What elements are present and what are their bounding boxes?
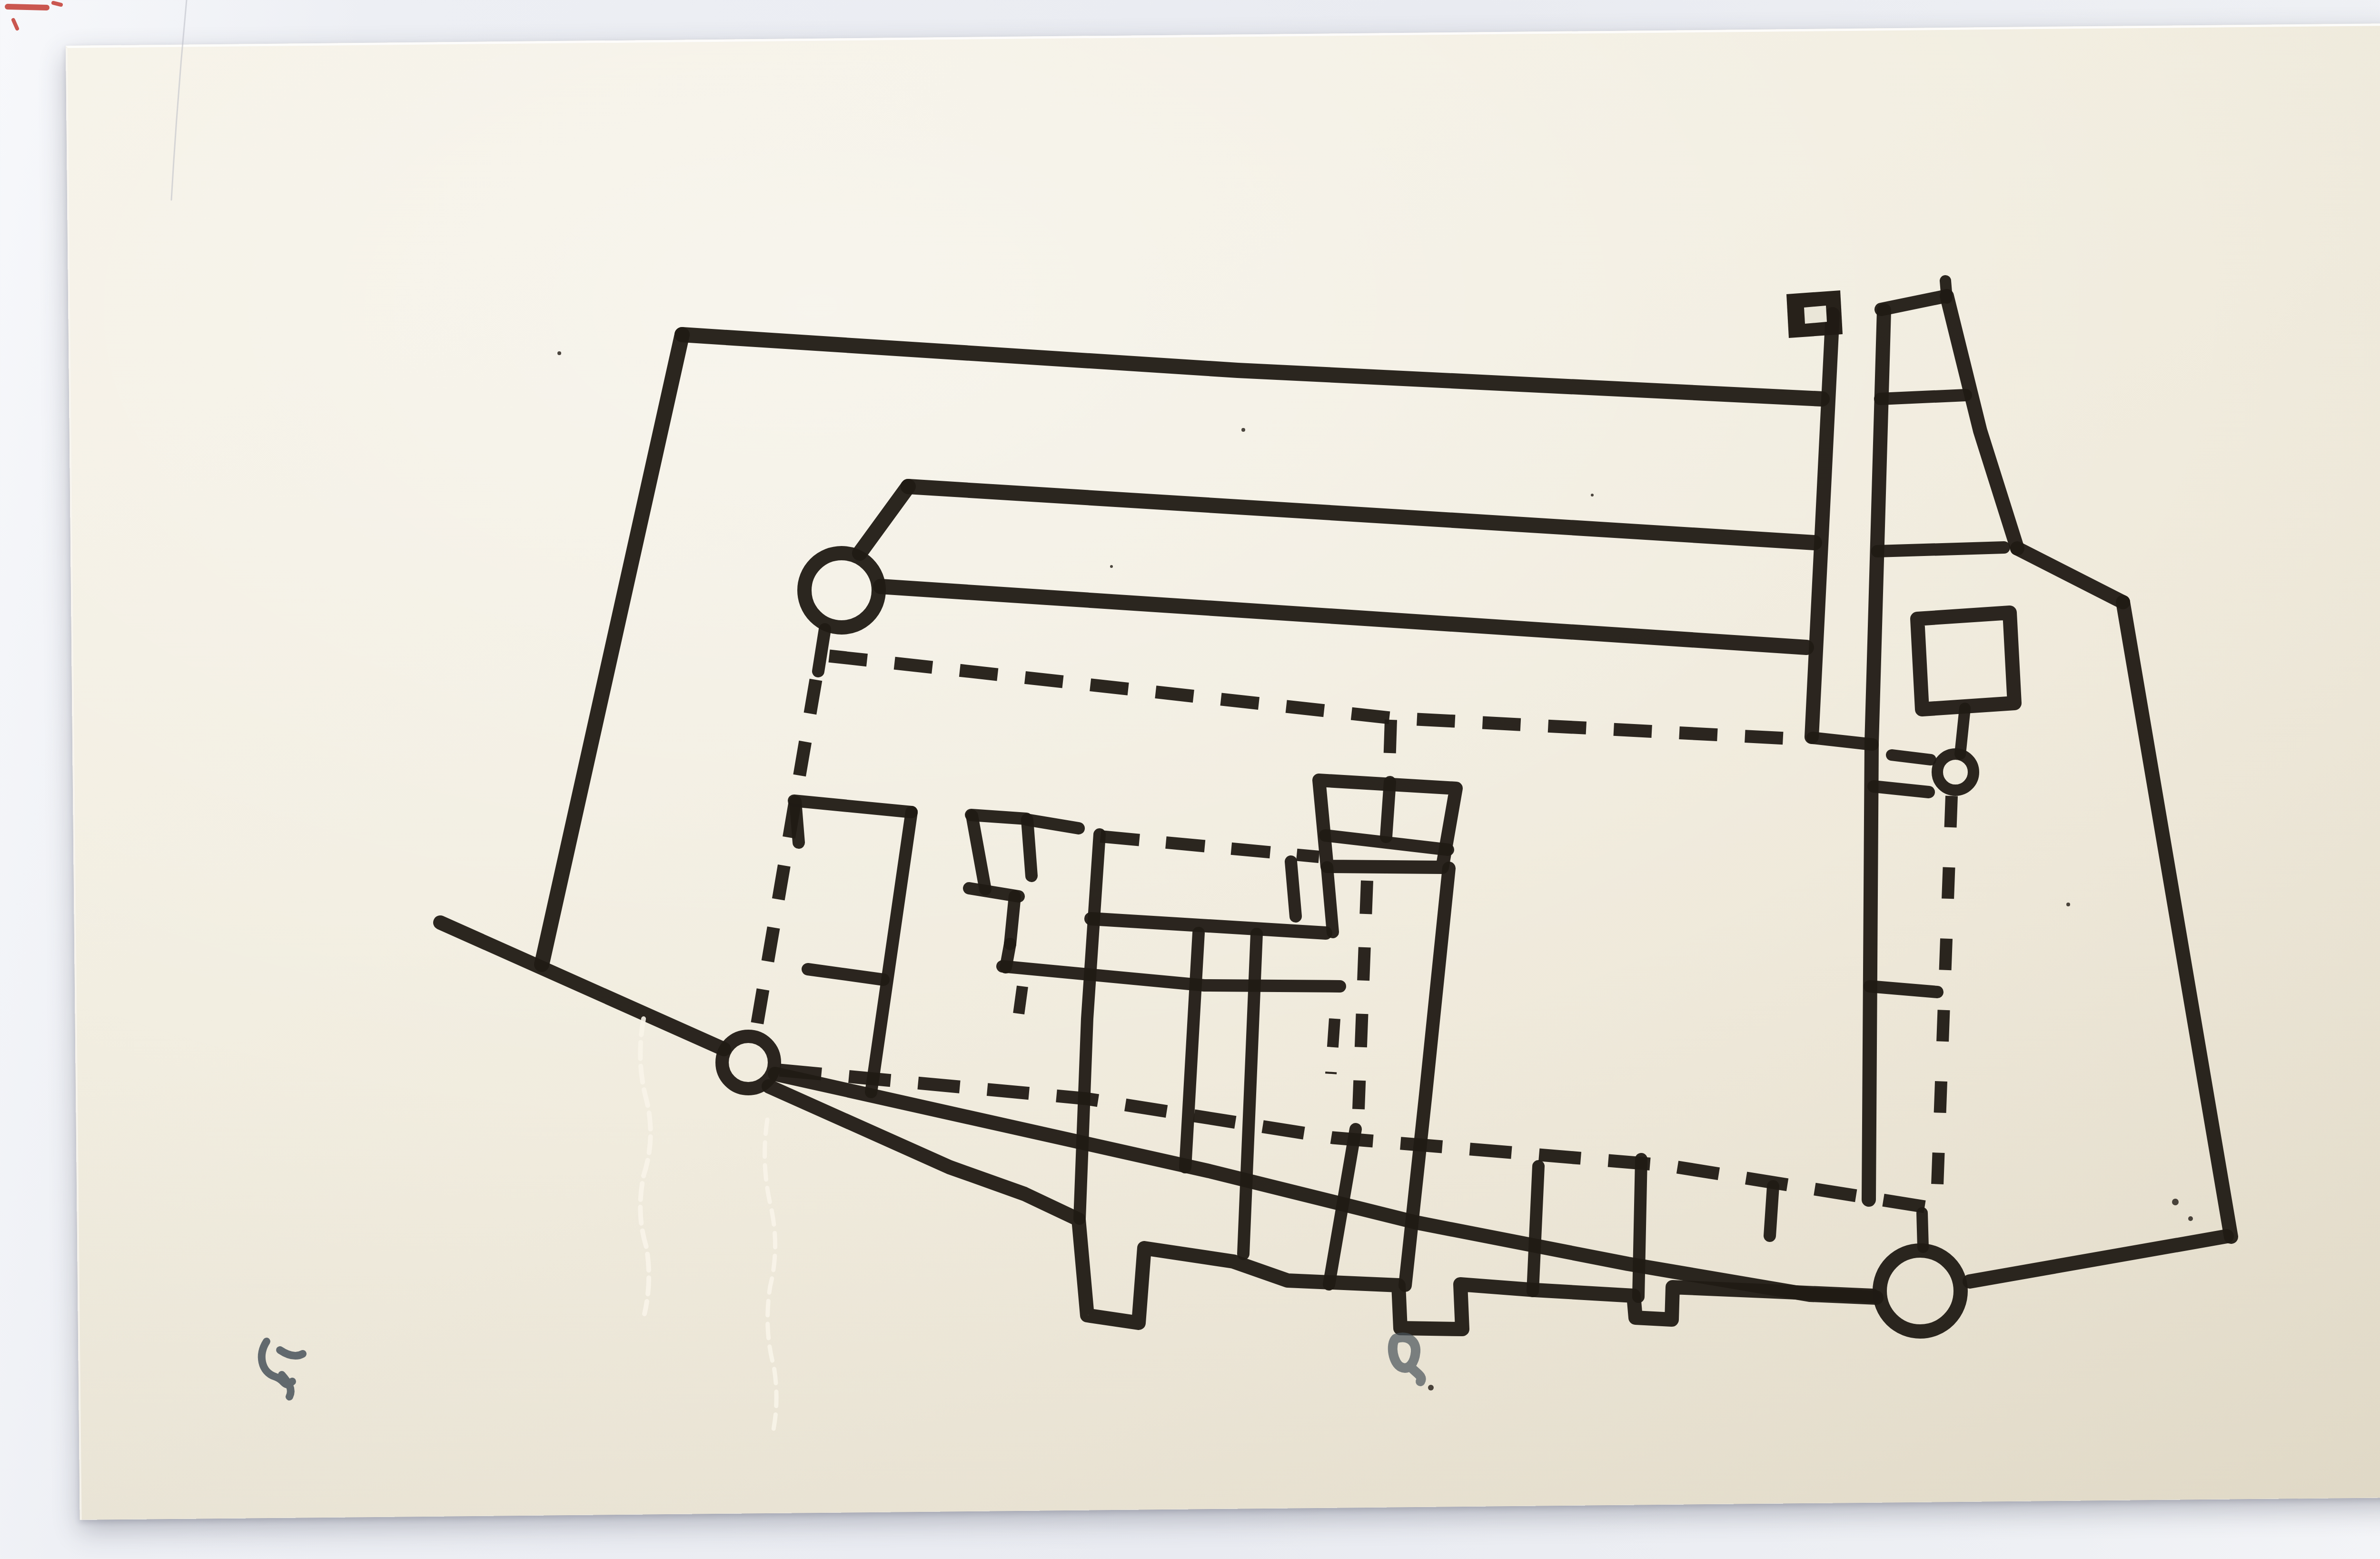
hull-tick-b bbox=[1770, 1186, 1773, 1236]
tower-top-bar bbox=[1881, 296, 1946, 309]
dust-speck bbox=[1241, 428, 1245, 432]
scratch-lower bbox=[765, 1120, 777, 1436]
dashed-inner-row bbox=[1101, 836, 1319, 857]
band-upper-diagonal bbox=[860, 487, 908, 553]
outer-boundary-top bbox=[682, 335, 1822, 399]
dust-speck bbox=[557, 351, 561, 355]
room2-left bbox=[972, 816, 985, 889]
dashed-west-boundary bbox=[756, 680, 816, 1031]
room2-top-b bbox=[1027, 820, 1079, 828]
node-circle-annex bbox=[1937, 754, 1973, 790]
dust-speck bbox=[2172, 1199, 2179, 1205]
room2-lower-bar bbox=[1002, 966, 1340, 986]
hall-bar bbox=[1091, 919, 1326, 933]
room2-mid-drop bbox=[1010, 896, 1015, 944]
dashed-annex-vertical bbox=[1936, 796, 1952, 1211]
flag-pole bbox=[1812, 314, 1833, 737]
annex-square bbox=[1917, 613, 2014, 709]
dust-speck bbox=[2188, 1216, 2193, 1221]
court-left-drop bbox=[1327, 867, 1333, 932]
road-line-east bbox=[775, 1074, 1876, 1298]
plan-drawing bbox=[0, 0, 2380, 1559]
dust-speck bbox=[1591, 494, 1594, 496]
right-boundary-diagonal bbox=[2017, 548, 2123, 602]
dashed-small-stub bbox=[1017, 986, 1022, 1028]
tower-left-rail bbox=[1869, 310, 1884, 1200]
annex-dash-stub bbox=[1892, 755, 1931, 760]
scanned-photo-page: { "figure": { "kind": "photograph-of-lin… bbox=[0, 0, 2380, 1559]
pole-tower-joint bbox=[1813, 738, 1873, 745]
hull-wall-square-foot bbox=[1638, 1159, 1641, 1297]
dashed-branch-lower bbox=[1359, 881, 1367, 1109]
dashed-survey-upper bbox=[829, 656, 1795, 739]
big-circle-top-stub bbox=[1922, 1213, 1923, 1247]
flag-block-hole bbox=[1804, 306, 1827, 324]
outer-boundary-left bbox=[542, 335, 682, 964]
court-divider-v bbox=[1386, 782, 1390, 837]
annex-square-stem bbox=[1960, 708, 1965, 754]
dust-speck bbox=[2066, 903, 2070, 906]
grey-smudge bbox=[1393, 1338, 1421, 1381]
node-circle-band bbox=[804, 553, 879, 627]
room1-top bbox=[794, 801, 912, 812]
hull-tick-a bbox=[1533, 1166, 1538, 1291]
tower-rung-upper bbox=[1880, 395, 1966, 399]
dust-speck bbox=[1110, 565, 1113, 568]
room2-door-stub bbox=[1027, 820, 1031, 876]
tower-stub-upper bbox=[1874, 786, 1929, 792]
tower-rung-lower bbox=[1877, 547, 2004, 551]
node-circle-road bbox=[722, 1036, 774, 1089]
scratch-left bbox=[640, 1019, 650, 1314]
road-line-west bbox=[440, 923, 724, 1049]
dust-speck bbox=[1428, 1385, 1434, 1390]
node-circle-stub bbox=[818, 629, 825, 671]
wall-to-road bbox=[1185, 933, 1199, 1167]
dashed-branch-upper bbox=[1389, 720, 1391, 779]
red-mark-c bbox=[53, 3, 61, 5]
bottom-edge-right bbox=[1970, 1236, 2227, 1281]
right-boundary bbox=[2123, 602, 2231, 1237]
room1-right-wall bbox=[871, 812, 912, 1092]
wall-centre-long bbox=[1080, 834, 1100, 1219]
band-lower-wall bbox=[881, 586, 1806, 647]
tower-stub-lower bbox=[1870, 986, 1937, 992]
red-mark-b bbox=[13, 20, 17, 29]
room2-top-a bbox=[971, 815, 1026, 819]
tower-right-rail bbox=[1947, 296, 2017, 548]
band-upper-wall bbox=[908, 487, 1815, 543]
bottom-hull-wall bbox=[769, 1086, 1873, 1329]
hairline-top bbox=[171, 0, 187, 200]
ink-scribble bbox=[262, 1341, 303, 1397]
node-circle-corner bbox=[1880, 1251, 1961, 1331]
red-mark-a bbox=[8, 7, 47, 8]
partition-tick bbox=[1291, 862, 1296, 916]
dashed-partition-stub bbox=[1331, 1019, 1335, 1074]
room1-bottom bbox=[808, 969, 883, 980]
